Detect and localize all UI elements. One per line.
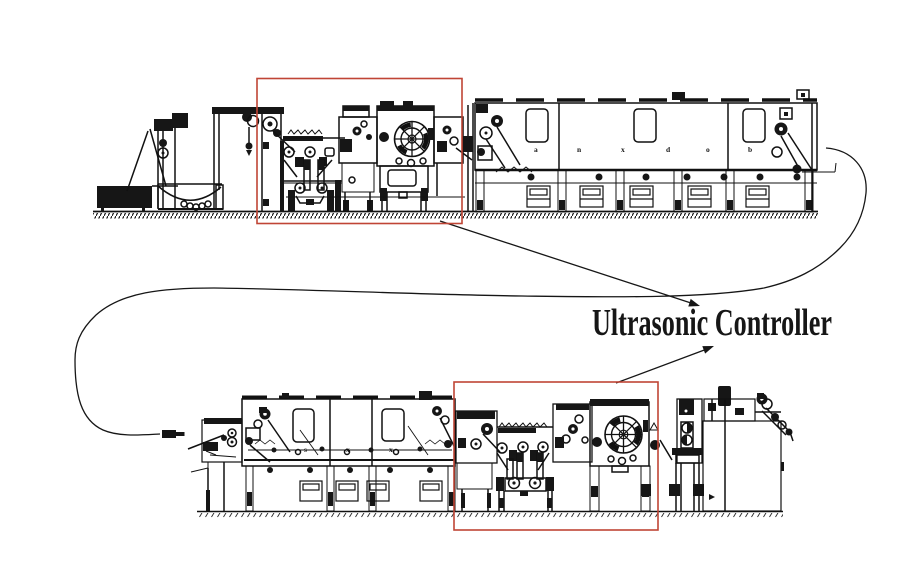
svg-text:n: n <box>577 145 582 154</box>
svg-text:s: s <box>304 445 307 454</box>
svg-text:d: d <box>666 145 671 154</box>
svg-text:b: b <box>748 145 752 154</box>
svg-text:x: x <box>621 145 625 154</box>
svg-text:o: o <box>706 145 710 154</box>
svg-text:Ultrasonic Controller: Ultrasonic Controller <box>592 302 832 344</box>
svg-text:a: a <box>534 145 538 154</box>
svg-text:x: x <box>389 445 393 454</box>
